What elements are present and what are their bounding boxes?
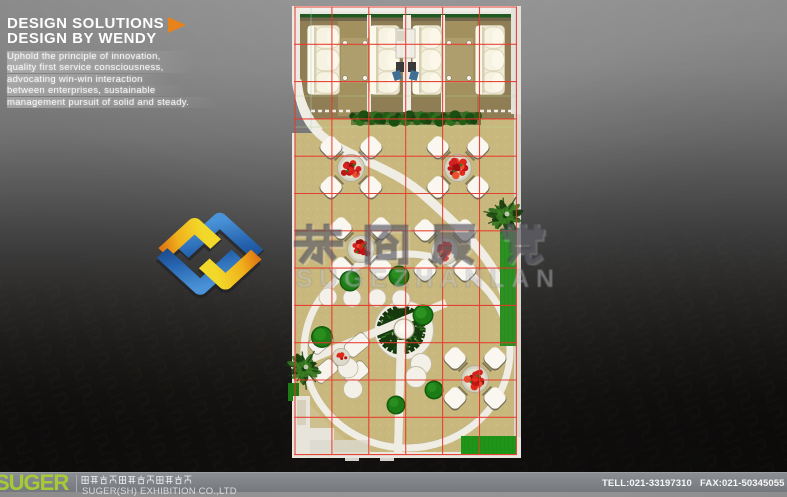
svg-text:SUGEZHANLAN: SUGEZHANLAN — [296, 265, 554, 293]
